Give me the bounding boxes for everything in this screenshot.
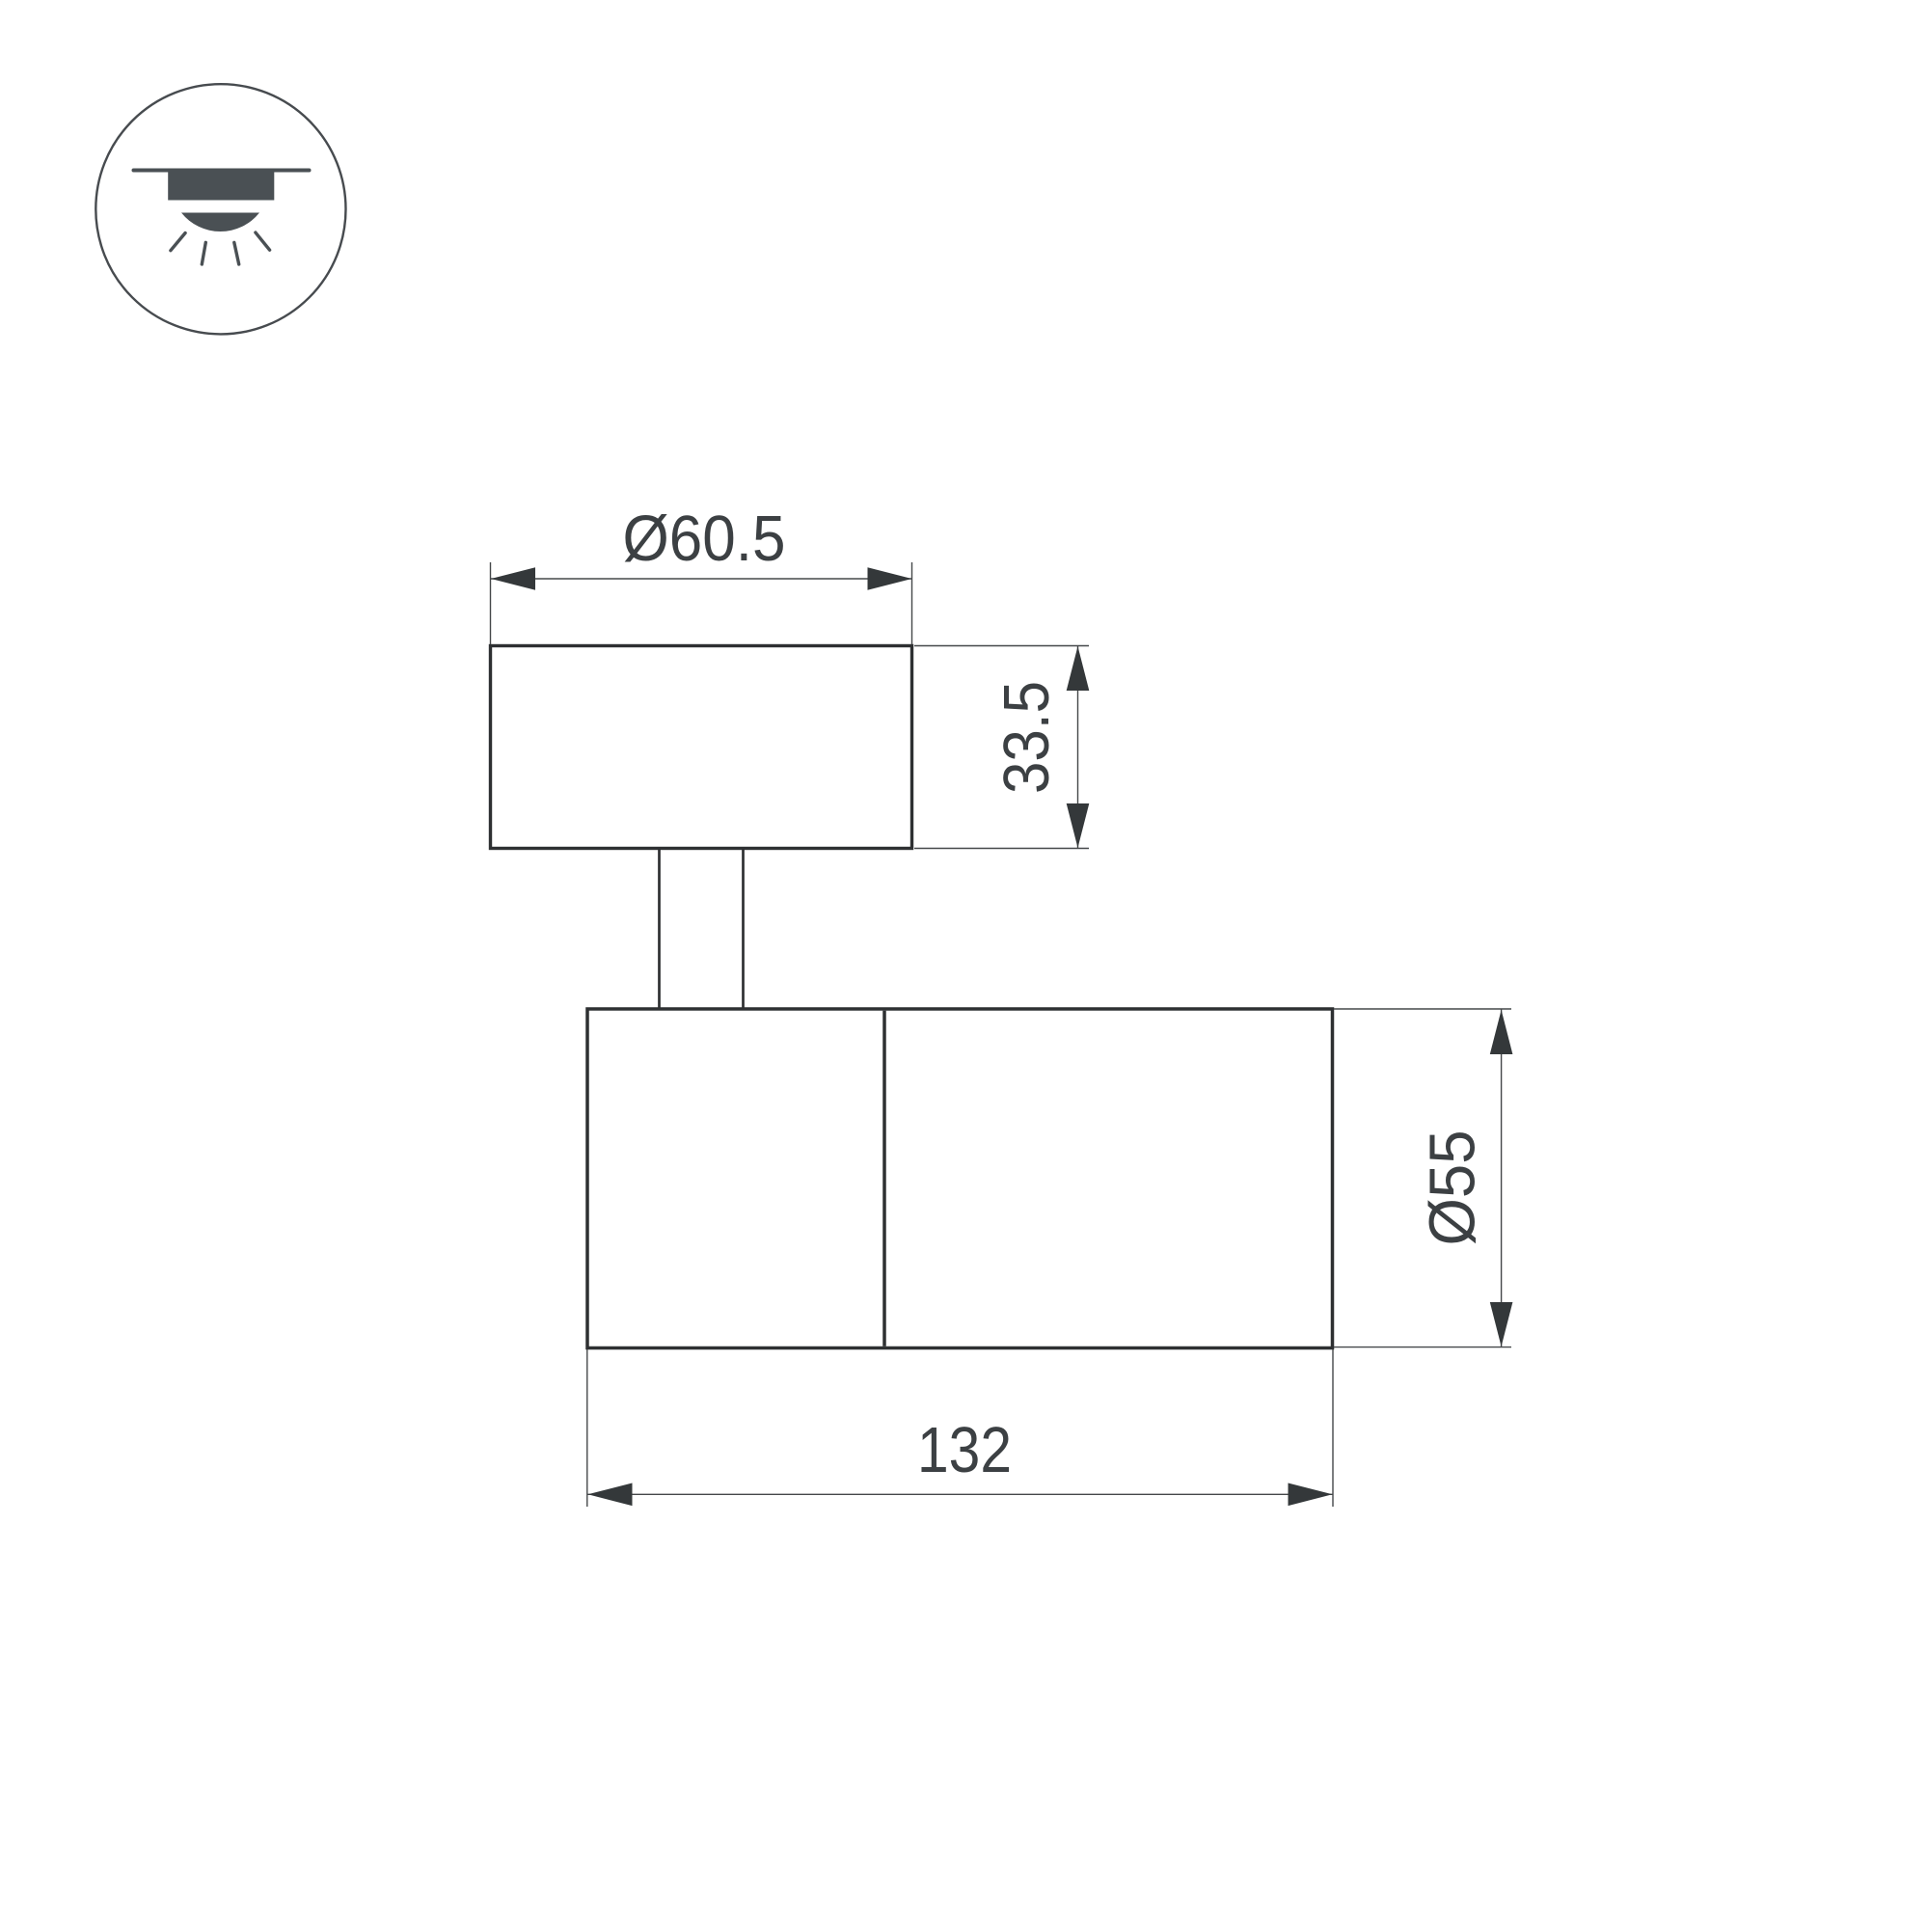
svg-text:Ø60.5: Ø60.5: [623, 503, 786, 575]
svg-text:132: 132: [917, 1414, 1012, 1486]
svg-text:33.5: 33.5: [991, 681, 1063, 794]
svg-text:Ø55: Ø55: [1417, 1130, 1489, 1246]
